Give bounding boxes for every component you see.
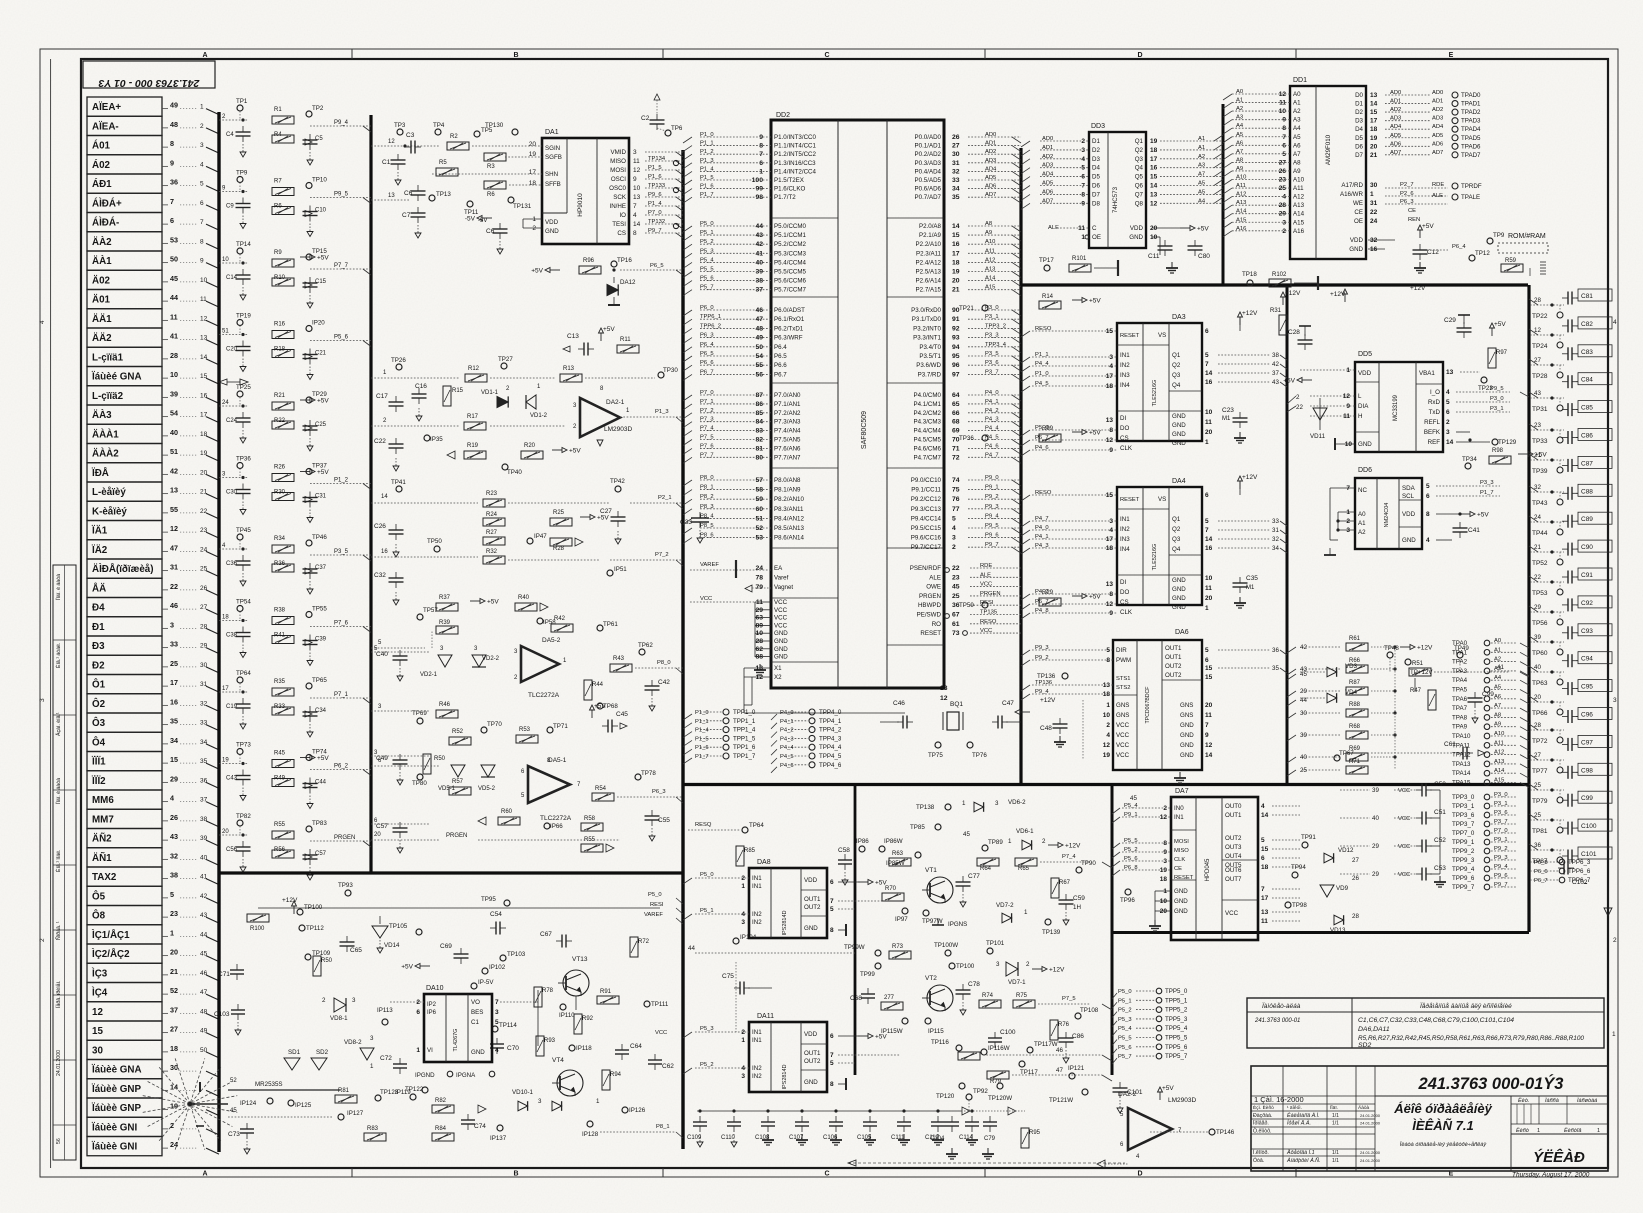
svg-text:VD7-1: VD7-1 [1008,979,1026,986]
svg-text:TPALE: TPALE [1461,194,1480,201]
svg-text:AD3: AD3 [985,158,996,164]
svg-text:P5_6: P5_6 [334,335,349,341]
svg-text:P9_7: P9_7 [648,228,662,234]
svg-text:11: 11 [1205,419,1212,426]
svg-text:62: 62 [755,646,763,653]
svg-text:OE: OE [1354,218,1363,225]
svg-text:VD6-1: VD6-1 [1016,828,1034,835]
svg-text:40: 40 [170,428,178,437]
svg-text:TP92: TP92 [973,1088,988,1095]
svg-text:8: 8 [830,927,834,934]
svg-text:Èíâ.¹ ïîäë.: Èíâ.¹ ïîäë. [55,850,62,873]
svg-text:P8_1: P8_1 [656,1124,670,1130]
svg-text:P4_4: P4_4 [780,745,794,751]
svg-text:A17/RD: A17/RD [1341,182,1363,189]
svg-text:AD0: AD0 [1432,90,1443,96]
svg-text:73: 73 [952,630,960,637]
svg-text:E: E [1449,52,1454,59]
svg-text:GND: GND [774,638,788,645]
svg-text:P8.3/AN11: P8.3/AN11 [774,506,804,513]
svg-text:P6_8: P6_8 [1124,865,1138,871]
svg-text:P1_0: P1_0 [1035,371,1049,377]
svg-text:6: 6 [1261,855,1265,862]
svg-text:32: 32 [1272,536,1279,543]
svg-text:A12: A12 [1293,194,1305,201]
svg-text:I_O: I_O [1430,389,1440,396]
svg-text:A10: A10 [1293,177,1305,184]
svg-text:43: 43 [170,832,178,841]
svg-text:51: 51 [755,515,763,522]
svg-text:P1_1: P1_1 [700,141,714,147]
svg-text:75: 75 [952,487,960,494]
svg-text:D2: D2 [1355,109,1363,116]
svg-text:Í.êîíòð.: Í.êîíòð. [1253,1149,1269,1156]
svg-text:TP120: TP120 [936,1093,955,1100]
svg-text:4: 4 [200,161,204,168]
svg-text:6: 6 [1446,409,1450,416]
svg-text:IPGNS: IPGNS [948,921,967,928]
svg-text:1: 1 [1370,191,1374,198]
svg-text:A2: A2 [1494,657,1501,663]
svg-text:29: 29 [755,607,763,614]
svg-text:17: 17 [170,678,178,687]
svg-text:P1_7: P1_7 [695,754,709,760]
svg-text:13: 13 [200,335,208,342]
svg-text:GND: GND [1172,440,1186,447]
svg-text:R102: R102 [1272,272,1287,278]
svg-text:GND: GND [1172,431,1186,438]
svg-text:C68: C68 [850,995,862,1002]
svg-text:C44: C44 [315,780,327,786]
svg-text:D: D [1137,1171,1142,1178]
svg-text:54: 54 [170,409,178,418]
svg-text:TESI: TESI [612,221,626,228]
svg-text:C93: C93 [1581,628,1593,635]
svg-text:BEFK: BEFK [1424,429,1441,436]
svg-text:VD13: VD13 [1330,927,1346,934]
svg-text:TP80: TP80 [412,780,427,787]
svg-text:P1_3: P1_3 [700,158,714,164]
svg-text:TP136: TP136 [1035,680,1052,686]
svg-text:P3.0/RxD0: P3.0/RxD0 [911,307,941,314]
svg-text:Q7: Q7 [1135,191,1144,198]
svg-text:C6: C6 [486,228,495,235]
svg-text:24: 24 [755,565,763,572]
svg-text:R81: R81 [338,1088,350,1094]
svg-text:TP21: TP21 [959,305,974,312]
svg-text:TP89: TP89 [988,839,1003,846]
svg-text:A13: A13 [1494,759,1504,765]
svg-text:34: 34 [200,739,208,746]
svg-text:Ëèñò: Ëèñò [1516,1127,1529,1134]
svg-text:IN/HE: IN/HE [609,203,626,210]
svg-text:GNS: GNS [1116,712,1129,719]
svg-text:57: 57 [755,477,763,484]
svg-text:VCC: VCC [1398,788,1410,794]
svg-text:12: 12 [1279,91,1287,98]
svg-text:P0.5/AD5: P0.5/AD5 [915,177,942,184]
svg-text:241.3763 000 - 01 Y3: 241.3763 000 - 01 Y3 [98,77,200,89]
svg-text:P9_2: P9_2 [1494,846,1508,852]
svg-text:TPP5_0: TPP5_0 [1165,988,1188,995]
svg-text:A13: A13 [985,267,995,273]
svg-text:P4_3: P4_3 [1035,543,1049,549]
svg-text:3: 3 [1109,354,1113,361]
svg-text:82: 82 [755,437,763,444]
svg-text:RESO: RESO [980,619,997,625]
svg-text:8: 8 [1282,125,1286,132]
svg-text:4: 4 [1109,363,1113,370]
svg-text:Q1: Q1 [1135,138,1144,145]
svg-text:R6: R6 [487,192,495,198]
svg-text:23: 23 [170,909,178,918]
svg-text:R12: R12 [468,366,480,372]
svg-text:ÌÇ3: ÌÇ3 [91,967,108,979]
svg-text:TP122: TP122 [405,1086,424,1093]
svg-text:TP23: TP23 [1478,385,1493,392]
svg-text:8: 8 [1109,591,1113,598]
svg-text:DO: DO [1120,589,1129,596]
svg-text:C22: C22 [374,438,386,445]
svg-text:Ð2: Ð2 [92,660,105,671]
svg-text:64: 64 [952,392,960,399]
svg-text:R31: R31 [1270,308,1282,314]
svg-text:10: 10 [1103,712,1111,719]
svg-text:VAREF: VAREF [644,912,663,918]
svg-text:P9_4: P9_4 [1035,689,1049,695]
svg-text:100: 100 [752,177,764,184]
svg-text:Äàòà: Äàòà [1358,1104,1370,1111]
svg-text:ÝËÊÀÐ: ÝËÊÀÐ [1533,1148,1585,1166]
svg-text:TPA15: TPA15 [1452,780,1471,787]
svg-text:13: 13 [1106,581,1114,588]
svg-text:X1: X1 [774,665,782,672]
svg-text:R24: R24 [486,512,498,518]
svg-text:8: 8 [200,238,204,245]
svg-text:A9: A9 [985,230,992,236]
svg-text:74HC573: 74HC573 [1112,186,1119,213]
svg-text:12: 12 [755,674,763,681]
svg-text:6: 6 [759,160,763,167]
svg-text:P1_6: P1_6 [700,184,714,190]
svg-text:5: 5 [1282,151,1286,158]
svg-text:22: 22 [200,508,208,515]
svg-text:4: 4 [1446,389,1450,396]
svg-text:A11: A11 [985,248,995,254]
svg-text:C46: C46 [893,700,905,707]
svg-text:5: 5 [1205,518,1209,525]
svg-text:DA2-1: DA2-1 [606,399,625,406]
svg-text:IP127: IP127 [347,1110,364,1117]
svg-text:9: 9 [1109,447,1113,454]
svg-text:26: 26 [170,813,178,822]
svg-text:P6_5: P6_5 [700,351,714,357]
svg-text:D6: D6 [1355,143,1363,150]
svg-text:TPP9_3: TPP9_3 [1452,857,1475,864]
svg-text:36: 36 [1272,647,1279,654]
svg-text:TPP4_0: TPP4_0 [819,709,842,716]
svg-text:AD3: AD3 [1390,116,1401,122]
svg-text:C62: C62 [662,1063,674,1070]
svg-text:TP+12V: TP+12V [1410,669,1433,676]
svg-text:11: 11 [1343,413,1350,420]
svg-text:P5_6: P5_6 [1124,856,1138,862]
svg-text:TPP4_2: TPP4_2 [819,727,842,734]
svg-text:IN4: IN4 [1120,546,1130,553]
svg-text:C11: C11 [1148,253,1160,260]
svg-text:P6_3: P6_3 [1400,199,1414,205]
svg-text:1: 1 [741,883,745,890]
svg-text:R28: R28 [553,546,565,552]
svg-text:11: 11 [756,599,763,606]
svg-text:TPP3_2: TPP3_2 [985,323,1006,329]
svg-text:VBA1: VBA1 [1419,370,1435,377]
svg-text:TPP1_6: TPP1_6 [733,744,756,751]
svg-text:TPP5_2: TPP5_2 [1165,1007,1188,1014]
svg-text:12: 12 [1106,437,1114,444]
svg-text:TPAD3: TPAD3 [1461,118,1481,125]
svg-text:16: 16 [952,241,960,248]
svg-text:P7_1: P7_1 [700,399,714,405]
svg-text:R72: R72 [638,939,650,945]
svg-text:IP51: IP51 [614,566,627,573]
svg-text:ALE: ALE [1432,193,1443,199]
svg-text:C54: C54 [490,911,502,918]
svg-text:91: 91 [952,316,960,323]
svg-text:R58: R58 [584,816,596,822]
svg-text:R95: R95 [1029,1130,1041,1136]
svg-text:15: 15 [170,755,178,764]
svg-text:TPAD7: TPAD7 [1461,152,1481,159]
svg-text:C25: C25 [315,422,327,428]
svg-text:52: 52 [755,525,763,532]
svg-text:26: 26 [200,585,208,592]
svg-text:14: 14 [170,1082,178,1091]
svg-text:IP115W: IP115W [881,1028,903,1035]
svg-text:OUT6: OUT6 [1225,867,1242,874]
svg-text:1: 1 [1024,909,1028,916]
svg-text:37: 37 [755,287,763,294]
svg-text:58: 58 [755,487,763,494]
svg-text:TP98: TP98 [1292,902,1307,909]
svg-text:63: 63 [755,615,763,622]
svg-text:Ïáùèé GNA: Ïáùèé GNA [91,372,142,383]
svg-text:C57: C57 [376,823,388,830]
svg-text:9: 9 [1081,200,1085,207]
svg-text:IP86W: IP86W [884,838,903,845]
svg-text:DA2-2: DA2-2 [1118,1091,1137,1098]
svg-text:P4_2: P4_2 [780,728,794,734]
svg-text:27: 27 [170,1025,178,1034]
svg-text:R70: R70 [885,886,897,892]
svg-text:R23: R23 [486,491,498,497]
svg-text:TLE5216G: TLE5216G [1152,544,1158,571]
svg-text:TP65: TP65 [312,677,327,684]
svg-text:A8: A8 [985,221,992,227]
svg-text:R19: R19 [467,443,479,449]
svg-text:R99: R99 [1042,426,1054,432]
svg-text:B: B [513,1171,518,1178]
svg-text:C50: C50 [1434,781,1446,788]
svg-text:AD2: AD2 [1042,154,1053,160]
svg-text:Îðåøî Ä.À.: Îðåøî Ä.À. [1287,1120,1311,1127]
svg-text:Q4: Q4 [1172,546,1181,553]
svg-text:C97: C97 [1581,739,1593,746]
svg-text:TP39: TP39 [1532,468,1548,475]
svg-text:12: 12 [92,1007,103,1018]
svg-text:71: 71 [952,445,960,452]
svg-text:TPA14: TPA14 [1452,770,1471,777]
svg-text:P1_6: P1_6 [695,745,709,751]
svg-text:IN1: IN1 [752,883,762,890]
svg-text:TPA2: TPA2 [1452,659,1468,666]
svg-text:14: 14 [1205,752,1213,759]
svg-text:IP2: IP2 [427,1002,437,1008]
svg-text:21: 21 [200,489,208,496]
svg-text:DA8: DA8 [757,859,771,866]
svg-text:TPAD1: TPAD1 [1461,101,1481,108]
svg-text:29: 29 [1372,871,1379,878]
svg-text:32: 32 [200,700,208,707]
svg-text:C4: C4 [226,132,234,138]
svg-text:TPCD067BDCF: TPCD067BDCF [1145,687,1151,724]
svg-text:GND: GND [1172,422,1186,429]
svg-text:28: 28 [1279,202,1287,209]
svg-text:26: 26 [1279,168,1287,175]
svg-text:39: 39 [1300,732,1307,739]
svg-text:+12V: +12V [1049,967,1065,974]
svg-text:+5V: +5V [603,326,615,333]
svg-text:VCC: VCC [1398,872,1410,878]
svg-text:7: 7 [633,203,637,210]
svg-text:44: 44 [170,293,178,302]
svg-text:VD3: VD3 [1345,663,1358,670]
svg-text:TPP5_1: TPP5_1 [1165,997,1188,1004]
svg-text:7: 7 [759,151,763,158]
svg-text:VT1: VT1 [925,867,937,874]
svg-text:A16: A16 [1236,226,1246,232]
svg-text:VCC: VCC [774,615,788,622]
svg-text:Ïáùèè GNA: Ïáùèè GNA [91,1065,142,1076]
svg-text:IN2: IN2 [1120,362,1130,369]
svg-text:R91: R91 [600,989,612,995]
svg-text:51: 51 [170,447,178,456]
svg-text:3: 3 [495,1009,499,1016]
svg-text:A0: A0 [1293,91,1301,98]
svg-text:IN2: IN2 [1120,526,1130,533]
svg-text:PE/SWD: PE/SWD [917,612,942,619]
svg-text:TP40: TP40 [507,469,522,476]
svg-text:ÁÐ1: ÁÐ1 [92,178,112,190]
svg-text:17: 17 [1261,895,1269,902]
svg-text:C3: C3 [406,132,415,139]
svg-text:P9.6/CC16: P9.6/CC16 [911,535,942,542]
svg-text:P6.7: P6.7 [774,371,787,378]
svg-text:TP33: TP33 [1532,438,1548,445]
svg-text:4: 4 [39,320,46,324]
svg-text:P9_5: P9_5 [985,523,999,529]
svg-text:OUT2: OUT2 [1165,663,1182,670]
svg-text:CS: CS [617,230,626,237]
svg-text:R92: R92 [582,1016,594,1022]
svg-text:TAX2: TAX2 [92,872,117,883]
svg-text:20: 20 [1150,225,1158,232]
svg-text:80: 80 [755,454,763,461]
svg-text:SFFB: SFFB [545,181,561,188]
svg-text:27: 27 [1352,857,1359,864]
svg-text:C30: C30 [226,490,238,496]
svg-text:AD3: AD3 [1432,116,1443,122]
svg-text:OUT1: OUT1 [1225,812,1242,819]
svg-text:TP36: TP36 [959,435,974,442]
svg-text:Ïáùèè GNP: Ïáùèè GNP [91,1084,141,1095]
svg-text:10: 10 [200,277,208,284]
svg-text:P5.6/CCM6: P5.6/CCM6 [774,278,807,285]
svg-text:OUT1: OUT1 [804,896,821,903]
svg-text:Q3: Q3 [1172,536,1181,543]
svg-text:2: 2 [1346,518,1350,525]
svg-text:STS2: STS2 [1116,685,1131,691]
svg-text:TP48: TP48 [1384,645,1399,652]
svg-text:98: 98 [755,194,763,201]
svg-text:P7_4: P7_4 [1062,854,1076,860]
svg-text:25: 25 [170,659,178,668]
svg-text:65: 65 [952,401,960,408]
svg-text:C81: C81 [1581,293,1593,300]
svg-text:IP66: IP66 [550,823,563,830]
svg-text:TP17: TP17 [1039,257,1054,264]
svg-text:P5_3: P5_3 [700,1026,714,1032]
svg-text:R18: R18 [274,347,286,353]
svg-text:P4_3: P4_3 [780,736,794,742]
svg-text:RDE: RDE [980,563,992,569]
svg-text:22: 22 [952,565,960,572]
svg-text:P8.4/AN12: P8.4/AN12 [774,515,804,522]
svg-text:C74: C74 [474,1123,486,1130]
svg-text:1 Çàì. 16-2000: 1 Çàì. 16-2000 [1254,1095,1304,1104]
svg-text:9: 9 [200,258,204,265]
svg-text:D5: D5 [1092,174,1100,181]
svg-text:23: 23 [1279,177,1287,184]
svg-text:31: 31 [1272,527,1279,534]
svg-text:P5_2: P5_2 [700,239,714,245]
svg-text:36: 36 [170,178,178,187]
svg-text:TP3: TP3 [394,122,406,129]
svg-text:C104: C104 [930,1136,945,1142]
svg-text:+12V: +12V [282,897,298,904]
svg-text:TP81: TP81 [1532,828,1548,835]
svg-text:P3.7/RD: P3.7/RD [918,371,942,378]
svg-text:26: 26 [952,134,960,141]
svg-text:TPAD2: TPAD2 [1461,109,1481,116]
svg-text:TP4: TP4 [433,122,445,129]
svg-text:TP77: TP77 [1532,768,1548,775]
svg-text:A15: A15 [985,285,995,291]
svg-text:ÄÀ2: ÄÀ2 [92,236,112,248]
svg-text:RESET: RESET [1174,875,1194,881]
svg-text:PRGEN: PRGEN [919,593,941,600]
svg-text:Q1: Q1 [1172,352,1181,359]
svg-text:C34: C34 [315,708,327,714]
svg-text:M1: M1 [1246,585,1255,591]
svg-text:43: 43 [200,912,208,919]
svg-text:94: 94 [952,344,960,351]
svg-text:P7.1/AN1: P7.1/AN1 [774,401,801,408]
svg-text:16: 16 [1205,379,1213,386]
svg-text:R63: R63 [892,851,904,857]
svg-text:K-èåïèý: K-èåïèý [92,506,127,517]
svg-text:24.01.2000: 24.01.2000 [1360,1113,1381,1118]
